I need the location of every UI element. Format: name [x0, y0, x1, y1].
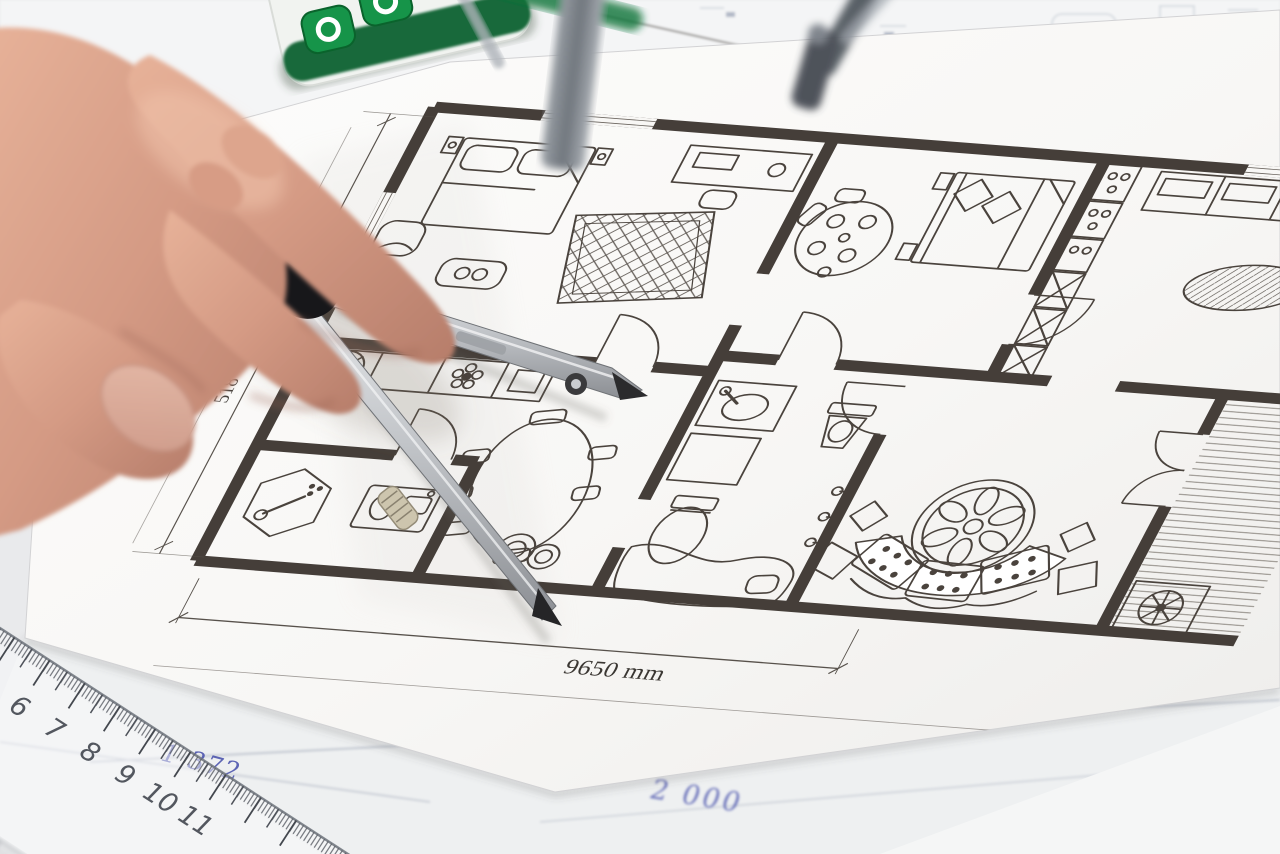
divider-hinge-screw [808, 24, 828, 44]
photo-scene: 2 000 [0, 0, 1280, 854]
